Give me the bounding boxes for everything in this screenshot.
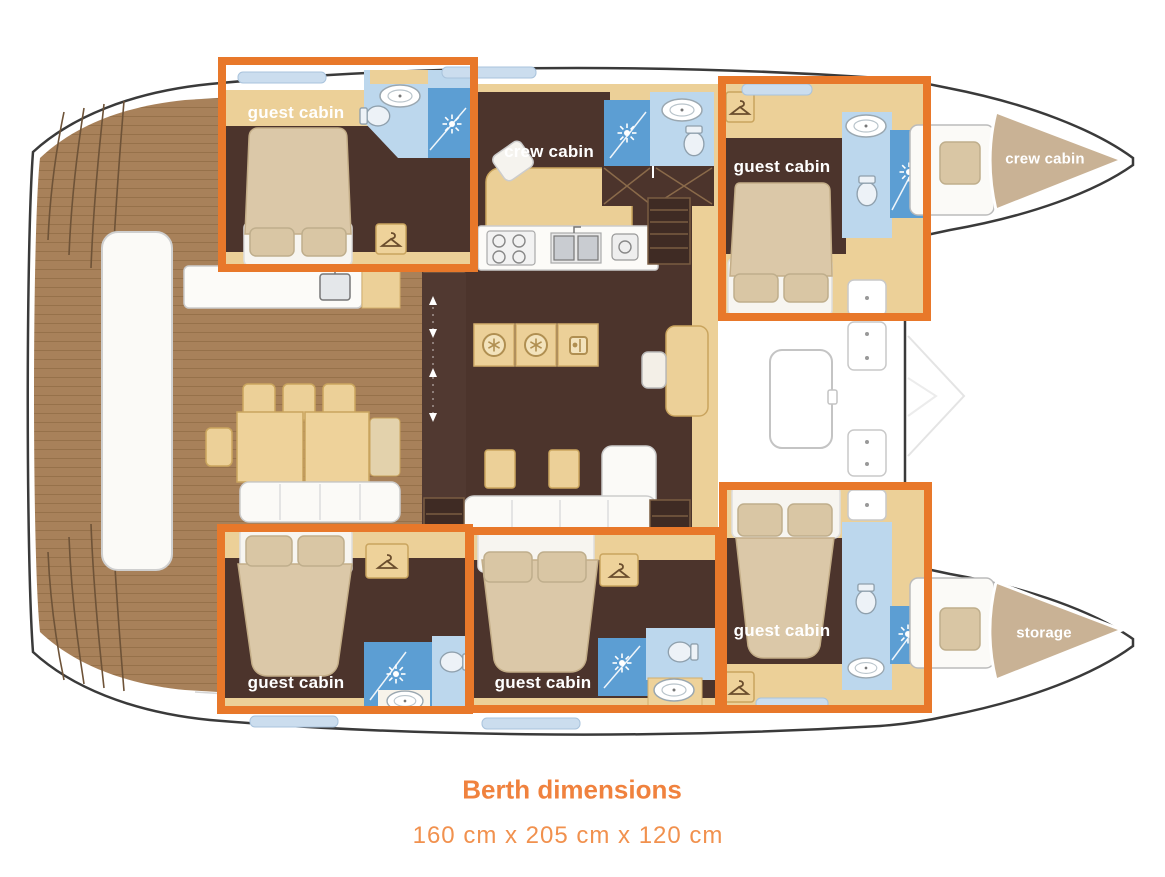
label-guest-cabin-bottom-left: guest cabin	[248, 673, 345, 693]
cockpit-bench	[240, 482, 400, 522]
wet-bar	[184, 266, 400, 308]
dining-table	[237, 412, 400, 482]
label-guest-cabin-bottom-middle: guest cabin	[495, 673, 592, 693]
highlight-box-guest-cabin-bottom-right	[719, 482, 932, 713]
label-crew-cabin-bow: crew cabin	[1005, 151, 1085, 168]
highlight-box-guest-cabin-top-left	[218, 57, 478, 272]
day-head-bathroom	[604, 92, 714, 166]
dishwasher-icon	[570, 337, 587, 354]
label-guest-cabin-top-left: guest cabin	[248, 103, 345, 123]
caption-title: Berth dimensions	[462, 775, 682, 806]
yacht-floorplan-page: guest cabin crew cabin guest cabin crew …	[0, 0, 1165, 877]
stern-bench	[102, 232, 172, 570]
label-crew-cabin-center: crew cabin	[504, 142, 594, 162]
fridge-icon	[525, 334, 547, 356]
label-guest-cabin-top-right: guest cabin	[734, 157, 831, 177]
highlight-box-guest-cabin-top-right	[718, 76, 931, 321]
galley-counter	[478, 226, 658, 270]
galley-island	[474, 324, 598, 366]
fridge-icon	[483, 334, 505, 356]
caption-dimensions: 160 cm x 205 cm x 120 cm	[413, 822, 724, 850]
label-guest-cabin-bottom-right: guest cabin	[734, 621, 831, 641]
trampoline-lines	[908, 336, 964, 456]
label-storage-bow: storage	[1016, 625, 1072, 642]
galley-appliance	[612, 234, 638, 260]
stove	[487, 231, 535, 265]
floorplan-svg	[0, 0, 1165, 877]
